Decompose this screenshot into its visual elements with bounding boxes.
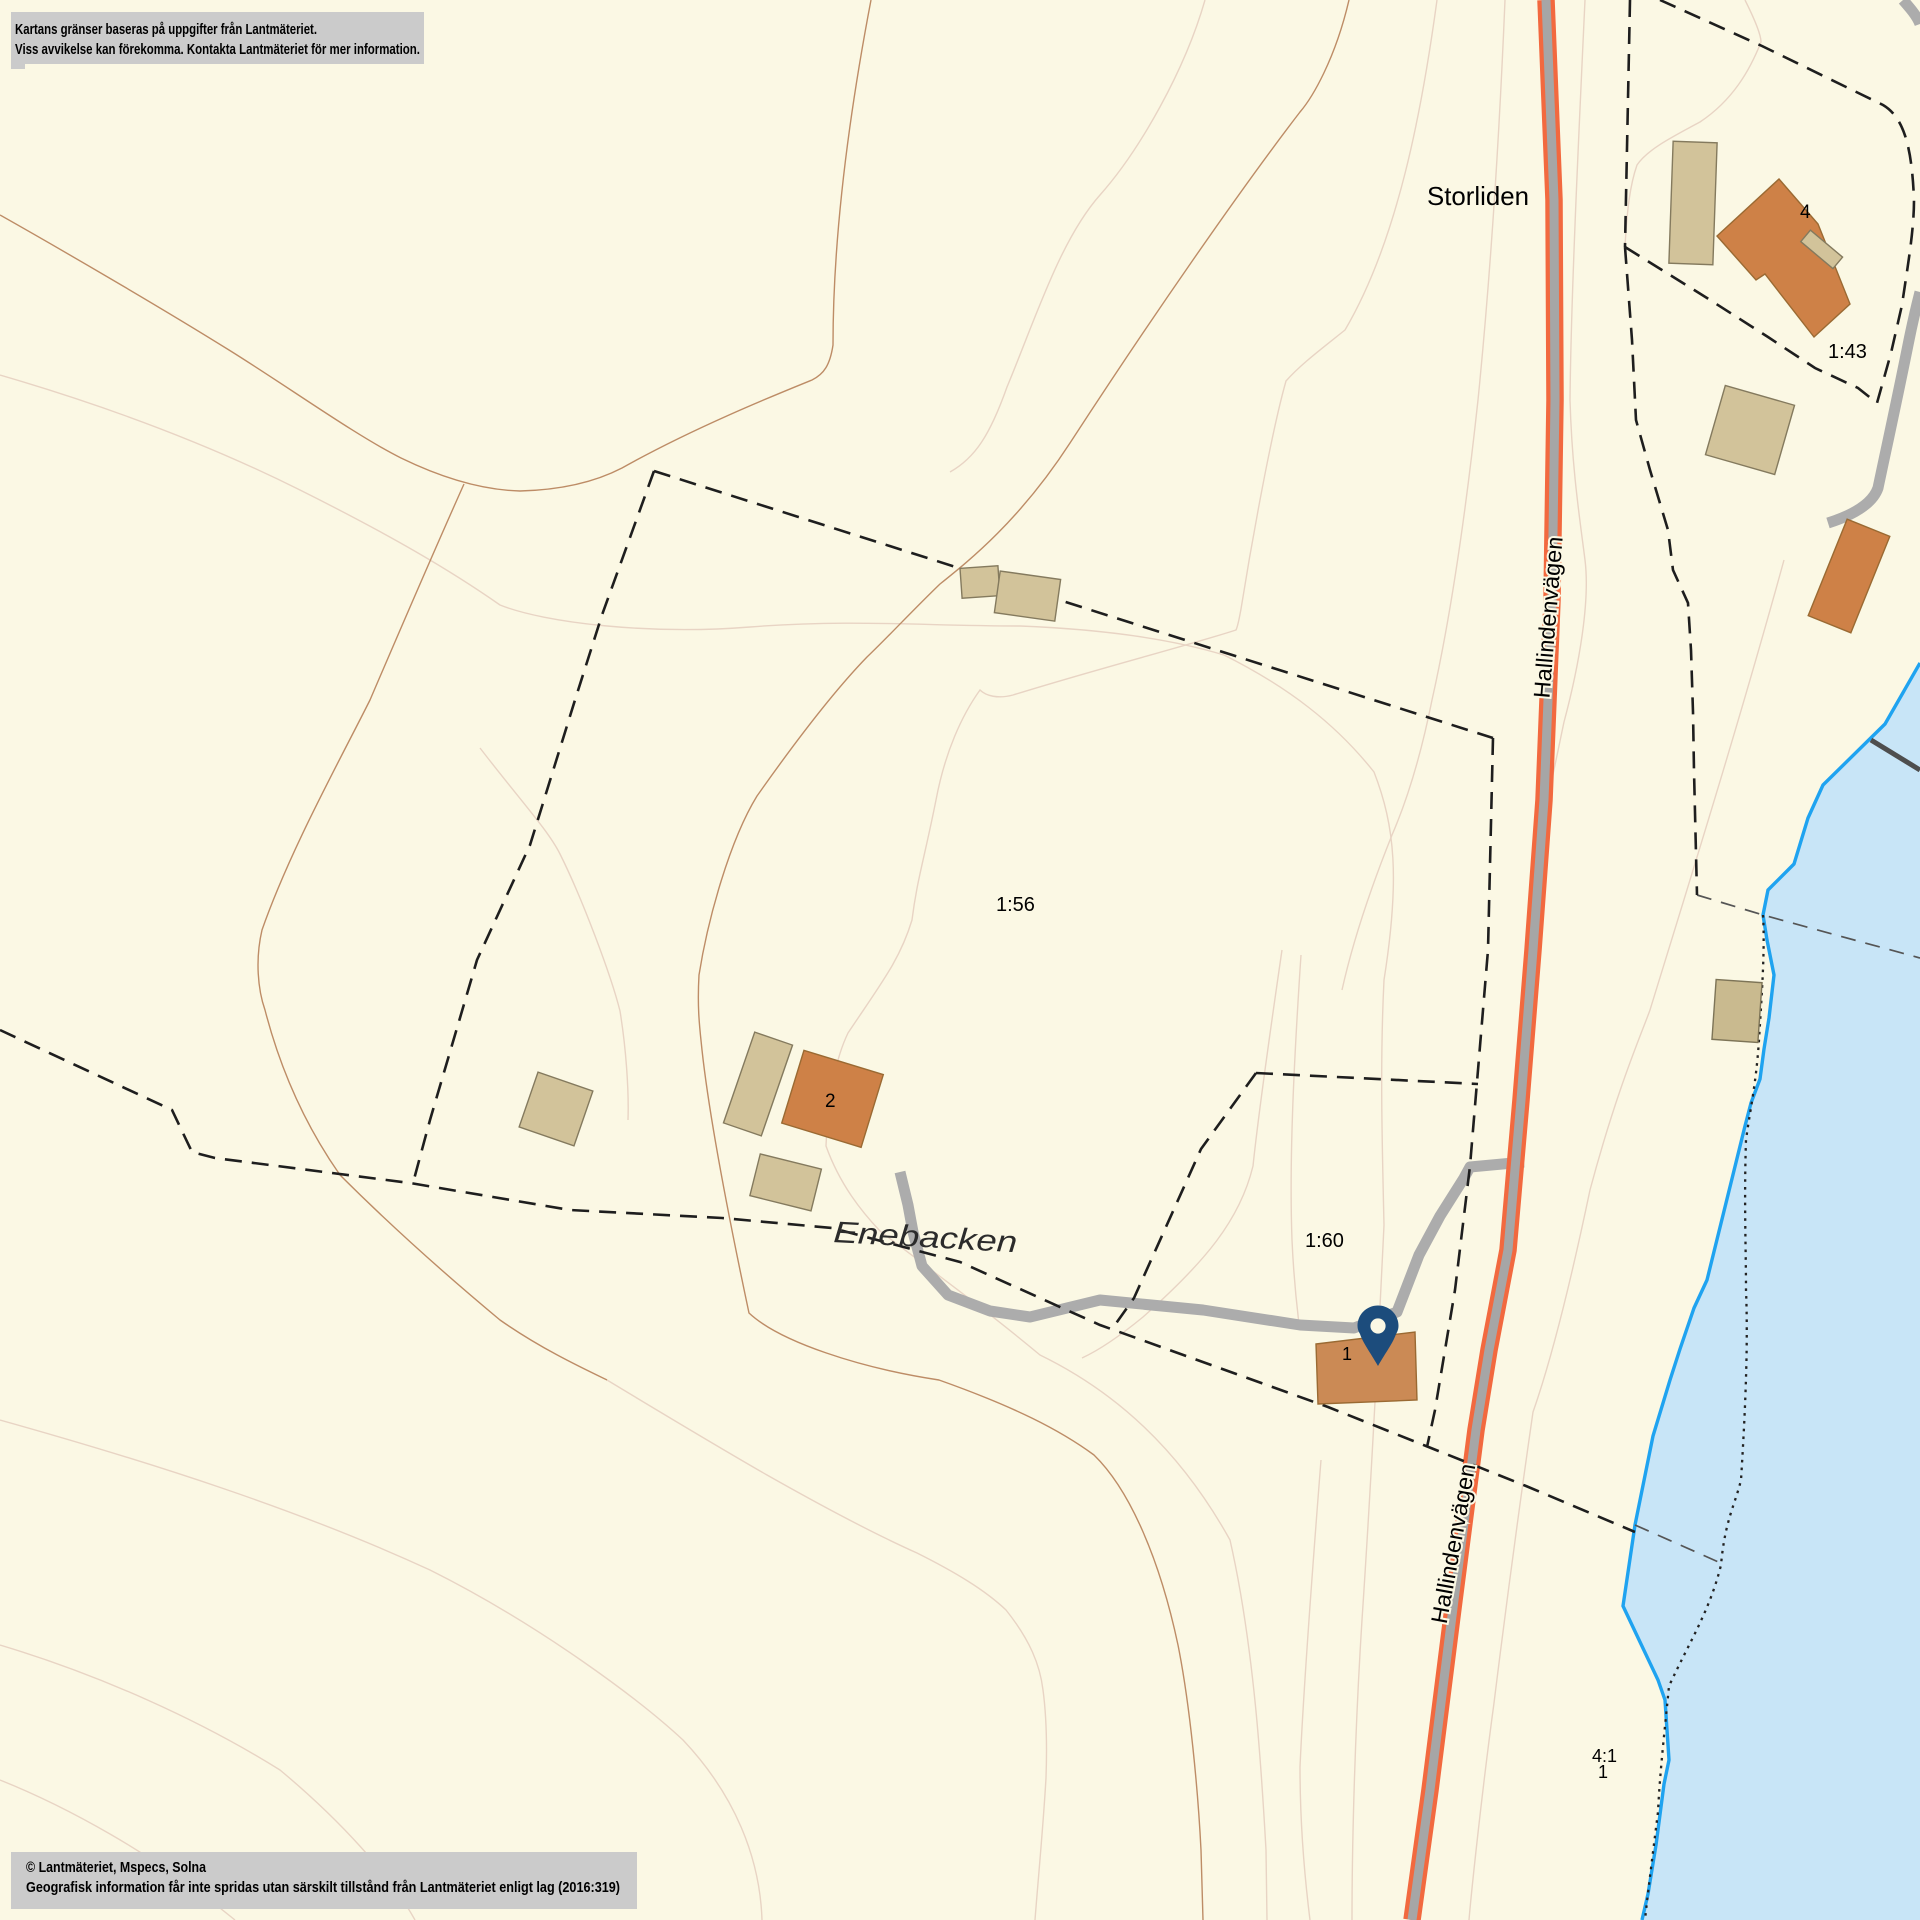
svg-text:1: 1	[1598, 1762, 1608, 1782]
svg-text:1:56: 1:56	[996, 894, 1035, 916]
svg-text:Kartans gränser baseras på upp: Kartans gränser baseras på uppgifter frå…	[15, 21, 317, 38]
svg-text:Storliden: Storliden	[1427, 181, 1529, 211]
svg-text:1: 1	[1342, 1344, 1352, 1364]
svg-text:Geografisk information får int: Geografisk information får inte spridas …	[26, 1879, 620, 1896]
svg-text:Viss avvikelse kan förekomma.: Viss avvikelse kan förekomma. Kontakta L…	[15, 41, 420, 58]
svg-text:4: 4	[1800, 202, 1811, 223]
svg-text:1:43: 1:43	[1828, 341, 1867, 363]
svg-text:1:60: 1:60	[1305, 1230, 1344, 1252]
svg-text:© Lantmäteriet, Mspecs, Solna: © Lantmäteriet, Mspecs, Solna	[26, 1859, 207, 1876]
svg-text:2: 2	[825, 1091, 836, 1112]
